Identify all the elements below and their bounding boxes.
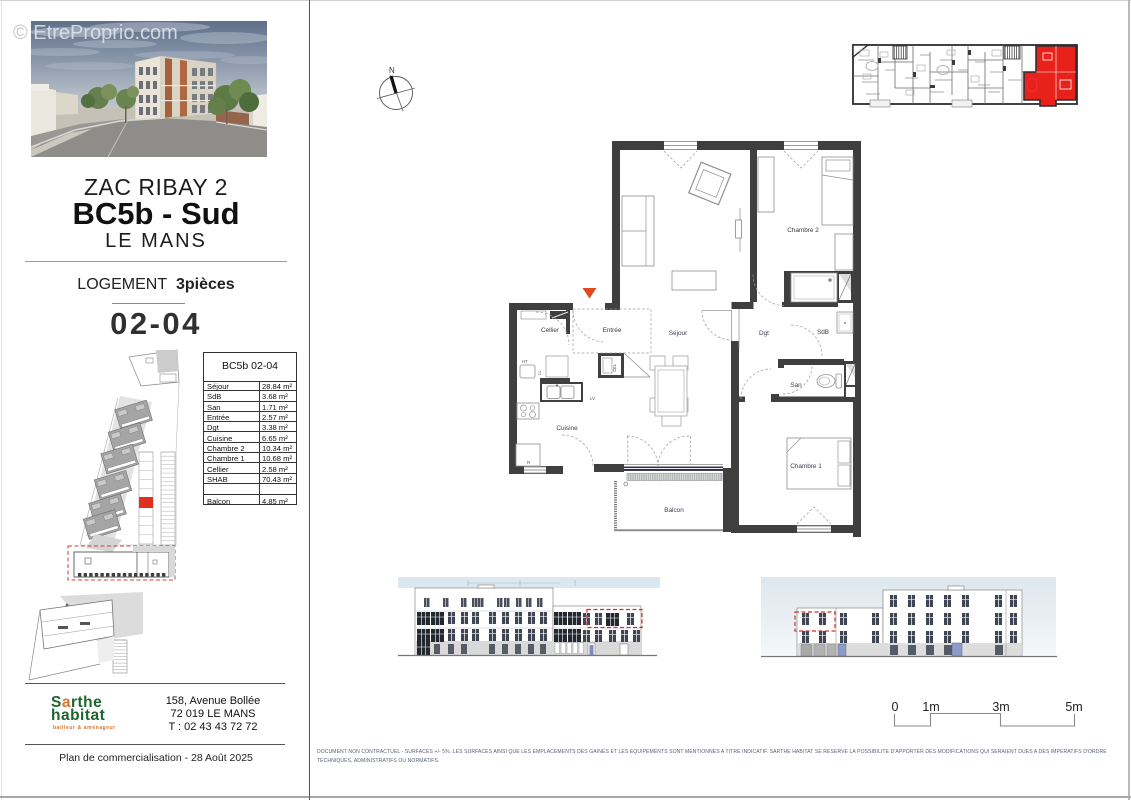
svg-text:LV: LV xyxy=(590,396,595,401)
svg-text:1m: 1m xyxy=(922,700,939,714)
svg-text:LL: LL xyxy=(537,370,542,375)
svg-text:Cellier: Cellier xyxy=(541,327,560,334)
svg-text:Séjour: Séjour xyxy=(669,330,688,337)
svg-text:CEL: CEL xyxy=(612,363,617,372)
svg-text:SdB: SdB xyxy=(817,329,829,336)
svg-text:Dgt: Dgt xyxy=(759,330,769,337)
svg-text:5m: 5m xyxy=(1065,700,1082,714)
svg-text:Chambre 1: Chambre 1 xyxy=(790,463,822,470)
svg-text:San: San xyxy=(790,382,802,389)
svg-text:HT: HT xyxy=(522,359,528,364)
svg-text:Cuisine: Cuisine xyxy=(556,425,578,432)
svg-text:Chambre 2: Chambre 2 xyxy=(787,227,819,234)
svg-text:Entrée: Entrée xyxy=(603,327,622,334)
svg-text:3m: 3m xyxy=(992,700,1009,714)
svg-text:0: 0 xyxy=(892,700,899,714)
svg-text:N: N xyxy=(389,66,395,75)
svg-text:Balcon: Balcon xyxy=(664,507,684,514)
